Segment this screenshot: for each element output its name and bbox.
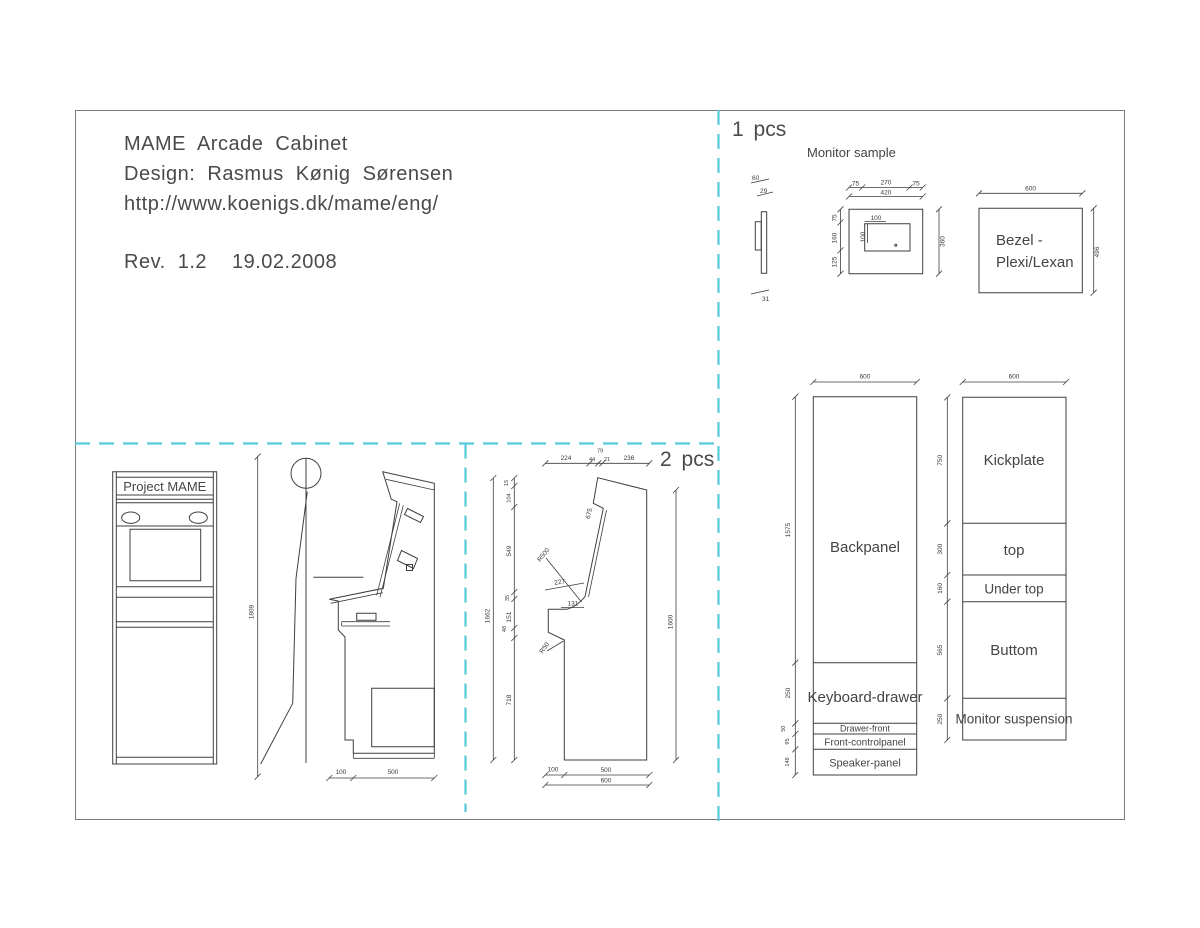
- dim-label: 300: [937, 543, 944, 554]
- dim-label: 48: [502, 626, 508, 632]
- dim-label: 100: [871, 215, 882, 222]
- dim-label: 500: [601, 767, 612, 774]
- dim-label: 60: [752, 175, 760, 182]
- monitor-bracket: [398, 551, 418, 569]
- revision-date: 19.02.2008: [232, 251, 337, 273]
- dim-label: 104: [507, 493, 513, 502]
- panel-label-backpanel: Backpanel: [830, 539, 900, 556]
- panel-label-under-top: Under top: [984, 582, 1043, 597]
- bezel-panel: 600 496 Bezel - Plexi/Lexan: [976, 185, 1101, 295]
- dim-label: 79: [597, 449, 603, 455]
- dim-label: 131: [568, 601, 579, 608]
- panel-label-front-controlpanel: Front-controlpanel: [824, 738, 905, 749]
- dim-label: 125: [832, 256, 839, 267]
- marquee-label: Project MAME: [123, 479, 206, 494]
- dim-label: 100: [336, 769, 347, 776]
- monitor-front-view: 75 270 75 420 75 160 125 360 100 100: [832, 180, 947, 277]
- panel-label-top: top: [1004, 542, 1025, 559]
- drawing-sheet: MAME Arcade Cabinet Design: Rasmus Kønig…: [0, 0, 1200, 928]
- dim-label: 250: [937, 713, 944, 724]
- cabinet-front-view: Project MAME: [113, 472, 217, 764]
- panel-label-kickplate: Kickplate: [984, 452, 1045, 469]
- qty-one-pcs-label: 1 pcs: [732, 118, 786, 141]
- panel-label-speaker-panel: Speaker-panel: [829, 758, 901, 770]
- dim-label: 151: [506, 611, 513, 622]
- panel-layout-a: 600 Backpanel Keyboard-drawer Drawer-fro…: [781, 374, 923, 779]
- dim-label: 15: [504, 480, 510, 486]
- dim-label: R500: [536, 546, 551, 563]
- dim-label: 160: [832, 232, 839, 243]
- dim-label: 549: [506, 545, 513, 556]
- dim-label: 1662: [485, 608, 492, 623]
- dim-label: 360: [940, 236, 947, 247]
- cabinet-side-view: 1809 100 500: [249, 454, 438, 781]
- bezel-label: Bezel -: [996, 232, 1043, 249]
- dim-label: 600: [1025, 185, 1036, 192]
- drawing-title: MAME Arcade Cabinet: [124, 133, 348, 155]
- dim-label: 420: [880, 190, 891, 197]
- dim-label: 31: [762, 296, 770, 303]
- dim-label: 750: [937, 454, 944, 465]
- dim-label: 500: [388, 769, 399, 776]
- dim-label: 29: [760, 188, 768, 195]
- panel-label-drawer-front: Drawer-front: [840, 724, 891, 734]
- dim-ticks: [838, 185, 943, 277]
- bezel-material-label: Plexi/Lexan: [996, 254, 1074, 271]
- dim-label: 236: [624, 455, 635, 462]
- dim-label: R50: [538, 641, 551, 655]
- revision-label: Rev. 1.2: [124, 251, 207, 273]
- speaker-grille-left: [122, 512, 140, 523]
- panel-label-monitor-suspension: Monitor suspension: [955, 712, 1072, 727]
- dim-label: 50: [781, 726, 787, 732]
- qty-two-pcs-label: 2 pcs: [660, 448, 714, 471]
- monitor-sample-section: Monitor sample 60 29 31 75 270 75 420 75…: [751, 145, 1101, 303]
- dim-label: 718: [506, 694, 513, 705]
- dim-label: 224: [561, 455, 572, 462]
- dim-label: 565: [937, 644, 944, 655]
- stick-person: [261, 458, 364, 764]
- dim-ticks: [542, 772, 652, 788]
- dim-label: 100: [860, 231, 867, 242]
- dim-ticks: [792, 379, 919, 778]
- dim-label: 250: [785, 687, 792, 698]
- marquee-speaker-box: [405, 509, 424, 523]
- side-panel-outline: [548, 478, 646, 760]
- subwoofer-box: [372, 688, 435, 746]
- screen-outline: [130, 529, 201, 580]
- panel-label-buttom: Buttom: [990, 642, 1038, 659]
- dim-label: 95: [785, 738, 791, 744]
- dim-label: 75: [912, 181, 920, 188]
- title-block: MAME Arcade Cabinet Design: Rasmus Kønig…: [124, 133, 453, 273]
- dim-label: 227: [554, 578, 566, 587]
- dim-label: 1600: [668, 614, 675, 629]
- dim-label: 44: [589, 457, 595, 463]
- dim-label: 160: [937, 583, 944, 594]
- keyboard-on-shelf: [357, 613, 376, 620]
- dim-label: 35: [505, 595, 511, 601]
- dim-label: 75: [832, 214, 839, 222]
- monitor-sample-label: Monitor sample: [807, 145, 896, 160]
- speaker-grille-right: [189, 512, 207, 523]
- dim-label: 600: [860, 374, 871, 381]
- designer-line: Design: Rasmus Kønig Sørensen: [124, 163, 453, 185]
- dim-label: 600: [1009, 374, 1020, 381]
- dim-label: 100: [548, 767, 559, 774]
- panel-label-keyboard-drawer: Keyboard-drawer: [807, 689, 922, 706]
- dim-label: 675: [585, 507, 594, 520]
- project-url: http://www.koenigs.dk/mame/eng/: [124, 193, 439, 215]
- dim-label: 75: [852, 181, 860, 188]
- dim-label: 270: [880, 180, 891, 187]
- dim-label: 21: [604, 457, 610, 463]
- dim-label: 148: [785, 757, 791, 766]
- dim-label: 496: [1094, 246, 1101, 257]
- dim-label: 600: [601, 778, 612, 785]
- section-cut-lines: [75, 110, 719, 822]
- dim-label: 1575: [785, 522, 792, 537]
- side-panel-2pcs: 224 44 79 21 236 1662 15 104 549 35 151 …: [485, 449, 680, 789]
- monitor-side-profile: 60 29 31: [751, 175, 773, 303]
- panel-layout-b: 600 Kickplate top Under top Buttom Monit…: [937, 374, 1073, 744]
- overall-height-label: 1809: [249, 604, 256, 619]
